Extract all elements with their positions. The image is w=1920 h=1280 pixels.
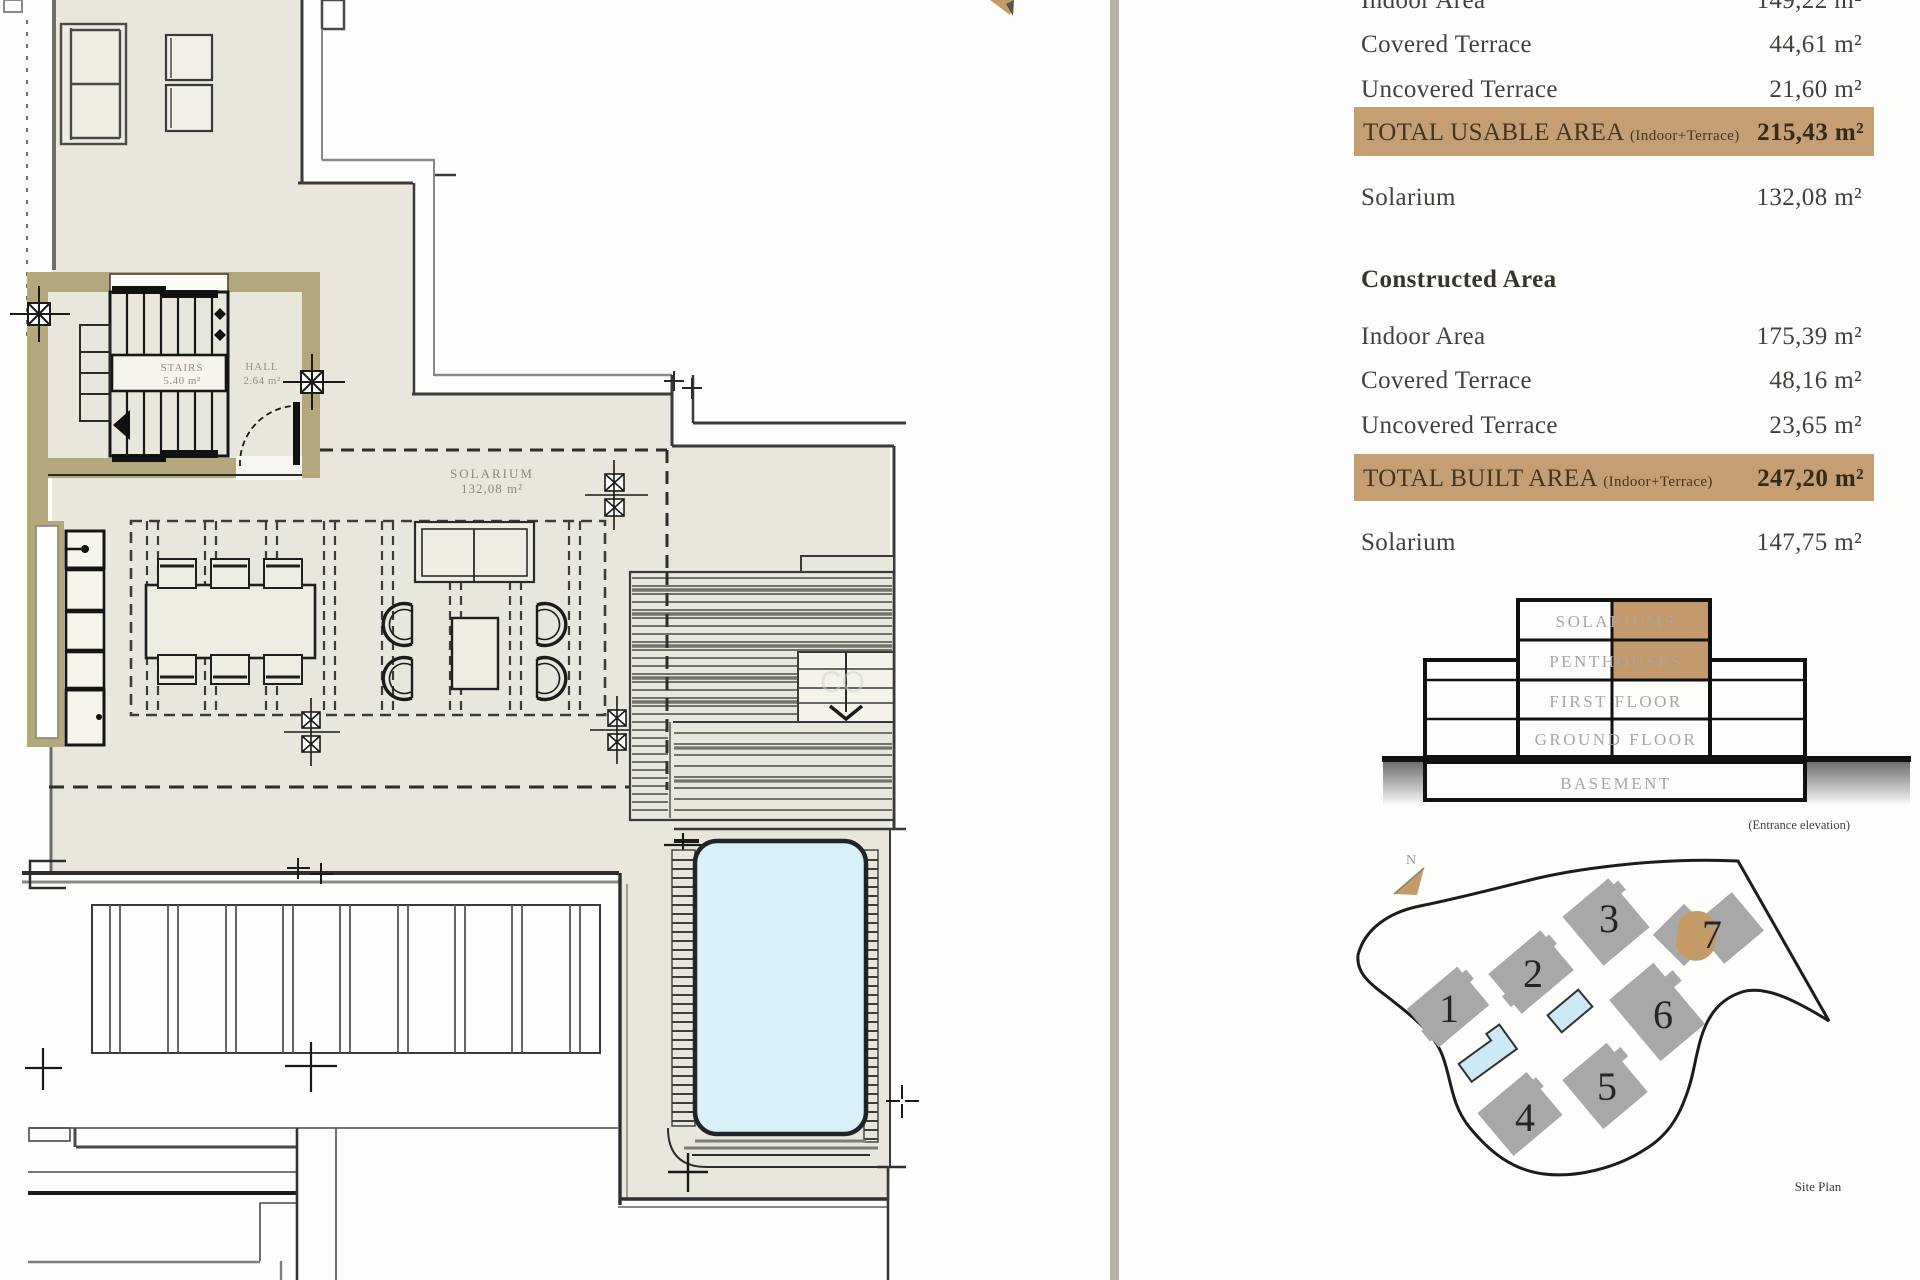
svg-text:23,65 m²: 23,65 m² — [1769, 412, 1862, 439]
svg-text:5.40 m²: 5.40 m² — [163, 375, 201, 387]
svg-text:48,16 m²: 48,16 m² — [1769, 367, 1862, 394]
svg-text:147,75 m²: 147,75 m² — [1756, 529, 1862, 556]
svg-text:21,60 m²: 21,60 m² — [1769, 76, 1862, 103]
svg-text:2.64 m²: 2.64 m² — [243, 375, 281, 387]
svg-text:SOLARIUM: SOLARIUM — [450, 466, 534, 481]
svg-text:(Entrance elevation): (Entrance elevation) — [1748, 818, 1850, 832]
svg-text:GROUND FLOOR: GROUND FLOOR — [1535, 730, 1698, 749]
svg-text:175,39 m²: 175,39 m² — [1756, 323, 1862, 350]
svg-text:149,22 m²: 149,22 m² — [1756, 0, 1862, 14]
svg-text:BASEMENT: BASEMENT — [1560, 774, 1672, 793]
svg-text:CO: CO — [820, 666, 865, 699]
svg-text:132,08 m²: 132,08 m² — [1756, 184, 1862, 211]
svg-text:215,43 m²: 215,43 m² — [1757, 119, 1864, 146]
svg-text:Uncovered Terrace: Uncovered Terrace — [1361, 76, 1558, 103]
svg-text:Solarium: Solarium — [1361, 184, 1456, 211]
svg-text:5: 5 — [1597, 1064, 1617, 1109]
svg-text:FIRST FLOOR: FIRST FLOOR — [1549, 692, 1682, 711]
svg-text:132,08 m²: 132,08 m² — [461, 481, 523, 496]
svg-text:SOLARIUMS: SOLARIUMS — [1556, 612, 1677, 631]
svg-text:7: 7 — [1702, 912, 1722, 957]
svg-text:PENTHOUSES: PENTHOUSES — [1549, 652, 1683, 671]
svg-text:STAIRS: STAIRS — [160, 362, 203, 374]
svg-text:4: 4 — [1515, 1095, 1535, 1140]
svg-text:N: N — [1406, 853, 1416, 868]
svg-text:Constructed Area: Constructed Area — [1361, 266, 1557, 293]
svg-text:Covered Terrace: Covered Terrace — [1361, 367, 1532, 394]
svg-text:Solarium: Solarium — [1361, 529, 1456, 556]
svg-text:6: 6 — [1653, 992, 1673, 1037]
svg-text:3: 3 — [1599, 896, 1619, 941]
svg-text:1: 1 — [1439, 986, 1459, 1031]
svg-text:Indoor Area: Indoor Area — [1361, 0, 1486, 14]
svg-text:2: 2 — [1523, 951, 1543, 996]
svg-text:247,20 m²: 247,20 m² — [1757, 465, 1864, 492]
svg-text:Site Plan: Site Plan — [1795, 1179, 1842, 1194]
svg-text:HALL: HALL — [245, 361, 278, 373]
svg-text:Covered Terrace: Covered Terrace — [1361, 31, 1532, 58]
svg-text:Indoor Area: Indoor Area — [1361, 323, 1486, 350]
svg-text:44,61 m²: 44,61 m² — [1769, 31, 1862, 58]
svg-text:Uncovered Terrace: Uncovered Terrace — [1361, 412, 1558, 439]
